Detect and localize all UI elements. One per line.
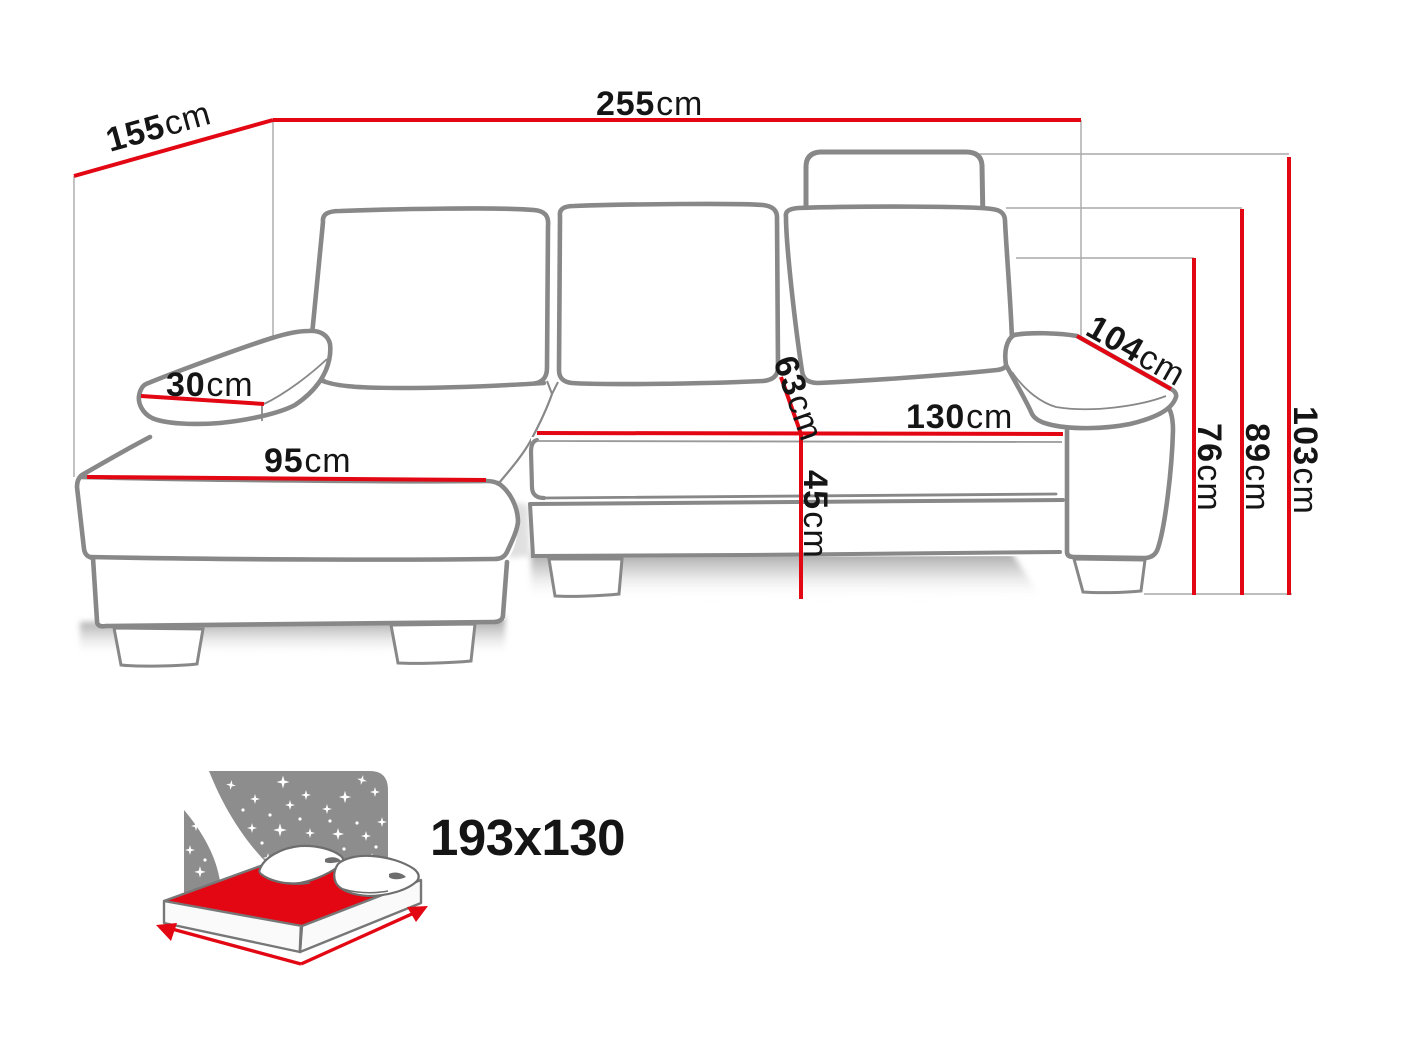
svg-text:193x130: 193x130 [430, 809, 625, 866]
svg-text:76cm: 76cm [1190, 423, 1228, 512]
svg-text:103cm: 103cm [1286, 406, 1324, 515]
svg-text:95cm: 95cm [264, 442, 351, 480]
svg-text:89cm: 89cm [1238, 423, 1276, 512]
svg-text:30cm: 30cm [166, 366, 253, 404]
svg-text:45cm: 45cm [796, 470, 834, 559]
svg-text:255cm: 255cm [596, 85, 703, 123]
svg-text:130cm: 130cm [906, 398, 1013, 436]
